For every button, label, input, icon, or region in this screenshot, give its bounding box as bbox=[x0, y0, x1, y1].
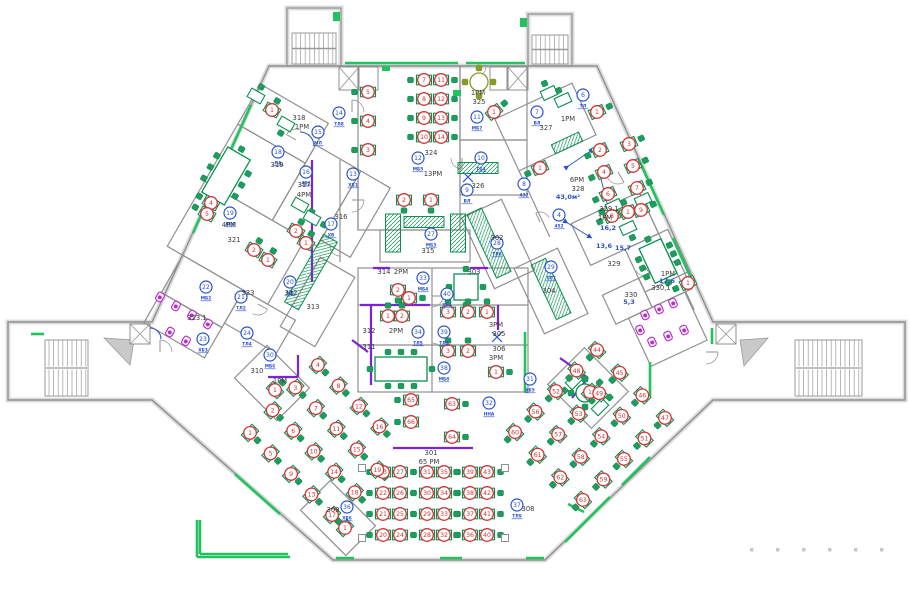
badge-number: 2 bbox=[598, 147, 602, 154]
badge-number: 9 bbox=[422, 115, 426, 122]
badge-number: 29 bbox=[423, 511, 431, 518]
chair bbox=[385, 383, 391, 389]
equipment-marker: 23ХБ3 bbox=[197, 333, 209, 354]
badge-number: 3 bbox=[627, 141, 631, 148]
badge-number: 1 bbox=[588, 389, 592, 396]
staircase bbox=[292, 33, 336, 64]
room-label: 1PM bbox=[561, 115, 575, 123]
marker-number: 14 bbox=[335, 110, 343, 117]
room-label: 306 bbox=[493, 345, 506, 353]
desk-number-badge: 11 bbox=[330, 422, 343, 435]
badge-number: 47 bbox=[661, 415, 669, 422]
marker-number: 29 bbox=[547, 264, 555, 271]
shaft-box bbox=[490, 67, 507, 90]
marker-number: 6 bbox=[581, 92, 585, 99]
badge-number: 20 bbox=[379, 532, 387, 539]
desk-number-badge: 5 bbox=[201, 208, 214, 221]
cabinet bbox=[386, 214, 401, 252]
chair bbox=[568, 390, 574, 396]
equipment-marker: 29ТЛ7 bbox=[545, 261, 557, 282]
badge-number: 61 bbox=[534, 452, 542, 459]
desk-number-badge: 51 bbox=[638, 432, 651, 445]
badge-number: 4 bbox=[366, 118, 370, 125]
area-label: 15,7 bbox=[615, 244, 631, 252]
room-label: 325 bbox=[473, 98, 486, 106]
room-label: 3PM bbox=[489, 321, 503, 329]
marker-number: 40 bbox=[443, 291, 451, 298]
marker-number: 33 bbox=[419, 275, 427, 282]
marker-number: 12 bbox=[414, 155, 422, 162]
staircase bbox=[532, 35, 568, 64]
elevator bbox=[130, 324, 150, 344]
badge-number: 3 bbox=[446, 309, 450, 316]
badge-number: 18 bbox=[351, 490, 359, 497]
marker-number: 10 bbox=[477, 155, 485, 162]
badge-number: 9 bbox=[289, 471, 293, 478]
badge-number: 1 bbox=[273, 387, 277, 394]
marker-number: 15 bbox=[314, 129, 322, 136]
badge-number: 65 bbox=[407, 397, 415, 404]
badge-number: 7 bbox=[635, 185, 639, 192]
chair bbox=[401, 208, 407, 214]
room-label: 321 bbox=[228, 236, 241, 244]
badge-number: 42 bbox=[483, 490, 491, 497]
room-label: 4PM bbox=[297, 191, 311, 199]
desk-number-badge: 46 bbox=[636, 389, 649, 402]
badge-number: 14 bbox=[330, 469, 338, 476]
room-label: 315 bbox=[422, 247, 435, 255]
desk-number-badge: 1 bbox=[682, 277, 695, 290]
marker-number: 34 bbox=[414, 329, 422, 336]
desk-number-badge: 56 bbox=[529, 405, 542, 418]
chair bbox=[367, 532, 373, 538]
room-label: 328 bbox=[572, 185, 585, 193]
marker-number: 13 bbox=[349, 171, 357, 178]
badge-number: 48 bbox=[573, 368, 581, 375]
equipment-marker: 34ТЛ5 bbox=[412, 326, 424, 347]
badge-number: 1 bbox=[494, 369, 498, 376]
desk-number-badge: 3 bbox=[623, 138, 636, 151]
badge-number: 39 bbox=[466, 469, 474, 476]
desk-number-badge: 44 bbox=[591, 344, 604, 357]
chair bbox=[465, 338, 471, 344]
desk-number-badge: 42 bbox=[481, 487, 494, 500]
desk-number-badge: 38 bbox=[464, 487, 477, 500]
desk-number-badge: 26 bbox=[394, 487, 407, 500]
room-label: 326 bbox=[472, 182, 485, 190]
badge-number: 4 bbox=[209, 200, 213, 207]
badge-number: 63 bbox=[448, 401, 456, 408]
room-label: 323 bbox=[242, 289, 255, 297]
equipment-marker: 22МБ2 bbox=[200, 281, 212, 302]
chair bbox=[352, 147, 358, 153]
room-label: 313 bbox=[307, 303, 320, 311]
desk-number-badge: 24 bbox=[394, 529, 407, 542]
desk-number-badge: 6 bbox=[602, 188, 615, 201]
chair bbox=[411, 383, 417, 389]
desk-number-badge: 1 bbox=[339, 522, 352, 535]
badge-number: 9 bbox=[639, 207, 643, 214]
chair bbox=[428, 208, 434, 214]
desk-number-badge: 66 bbox=[405, 416, 418, 429]
desk-number-badge: 2 bbox=[290, 225, 303, 238]
badge-number: 5 bbox=[366, 89, 370, 96]
badge-number: 55 bbox=[620, 456, 628, 463]
elevator bbox=[339, 67, 359, 90]
chair bbox=[498, 490, 504, 496]
marker-number: 27 bbox=[427, 231, 435, 238]
facade-column bbox=[776, 548, 780, 552]
table-top bbox=[454, 274, 478, 300]
facade-column bbox=[828, 548, 832, 552]
marker-number: 19 bbox=[226, 210, 234, 217]
equipment-marker: 27МБ3 bbox=[425, 228, 437, 249]
badge-number: 2 bbox=[271, 408, 275, 415]
badge-number: 21 bbox=[379, 511, 387, 518]
desk-number-badge: 52 bbox=[550, 385, 563, 398]
badge-number: 7 bbox=[422, 77, 426, 84]
chair bbox=[411, 469, 417, 475]
desk-number-badge: 63 bbox=[446, 398, 459, 411]
window-block bbox=[520, 18, 527, 27]
desk-number-badge: 2 bbox=[396, 310, 409, 323]
badge-number: 11 bbox=[437, 77, 445, 84]
cabinet-body bbox=[386, 214, 401, 252]
badge-number: 53 bbox=[575, 411, 583, 418]
desk-number-badge: 31 bbox=[421, 466, 434, 479]
chair bbox=[408, 77, 414, 83]
marker-number: 7 bbox=[535, 109, 539, 116]
room-label: 305 bbox=[493, 330, 506, 338]
desk-number-badge: 28 bbox=[421, 529, 434, 542]
badge-number: 63 bbox=[579, 497, 587, 504]
room-label: 316 bbox=[335, 213, 348, 221]
staircase bbox=[45, 340, 88, 396]
desk-number-badge: 8 bbox=[332, 379, 345, 392]
desk-number-badge: 2 bbox=[392, 284, 405, 297]
desk-number-badge: 1 bbox=[490, 366, 503, 379]
badge-number: 49 bbox=[595, 390, 603, 397]
room-label: 329.1 bbox=[599, 205, 618, 213]
chair bbox=[452, 115, 458, 121]
badge-number: 57 bbox=[554, 431, 562, 438]
chair bbox=[420, 295, 426, 301]
desk-number-badge: 60 bbox=[509, 426, 522, 439]
badge-number: 1 bbox=[386, 313, 390, 320]
badge-number: 5 bbox=[205, 211, 209, 218]
badge-number: 62 bbox=[556, 475, 564, 482]
badge-number: 24 bbox=[396, 532, 404, 539]
chair bbox=[191, 203, 199, 211]
desk-number-badge: 45 bbox=[613, 366, 626, 379]
badge-number: 2 bbox=[294, 228, 298, 235]
badge-number: 4 bbox=[316, 362, 320, 369]
badge-number: 30 bbox=[423, 490, 431, 497]
window-block bbox=[453, 90, 461, 96]
badge-number: 14 bbox=[437, 134, 445, 141]
room-label: 6PM bbox=[570, 176, 584, 184]
desk-number-badge: 55 bbox=[618, 453, 631, 466]
window-block bbox=[382, 66, 390, 71]
facade-column bbox=[750, 548, 754, 552]
room-label: 314 bbox=[378, 268, 391, 276]
room-label: 317 bbox=[298, 181, 311, 189]
room-label: 1PM bbox=[295, 123, 309, 131]
equipment-marker: 40ХБ4 bbox=[441, 288, 453, 309]
column bbox=[502, 465, 509, 472]
desk-number-badge: 9 bbox=[285, 468, 298, 481]
room-label: 322 bbox=[285, 289, 298, 297]
desk-number-badge: 61 bbox=[531, 448, 544, 461]
desk-number-badge: 1 bbox=[488, 106, 501, 119]
desk-number-badge: 53 bbox=[572, 407, 585, 420]
equipment-marker: 33МБ4 bbox=[417, 272, 429, 293]
badge-number: 1 bbox=[304, 240, 308, 247]
area-label: 17,6 bbox=[659, 277, 676, 285]
badge-number: 1 bbox=[429, 197, 433, 204]
room-label: 319 bbox=[271, 161, 284, 169]
chair bbox=[463, 401, 469, 407]
room-label: 308 bbox=[522, 505, 535, 513]
column bbox=[359, 535, 366, 542]
desk-number-badge: 18 bbox=[348, 486, 361, 499]
chair bbox=[395, 419, 401, 425]
room-label: 330,1 bbox=[651, 284, 670, 292]
desk-number-badge: 1 bbox=[244, 427, 257, 440]
chair bbox=[213, 152, 221, 160]
marker-number: 4 bbox=[557, 212, 561, 219]
desk-number-badge: 1 bbox=[403, 292, 416, 305]
desk-number-badge: 1 bbox=[266, 104, 279, 117]
desk-number-badge: 5 bbox=[627, 160, 640, 173]
badge-number: 1 bbox=[343, 525, 347, 532]
chair bbox=[206, 163, 214, 171]
badge-number: 1 bbox=[686, 280, 690, 287]
desk-number-badge: 3 bbox=[442, 345, 455, 358]
desk-number-badge: 19 bbox=[371, 463, 384, 476]
badge-number: 3 bbox=[293, 385, 297, 392]
badge-number: 6 bbox=[291, 428, 295, 435]
room-label: 1PM bbox=[471, 89, 485, 97]
area-label: 5,3 bbox=[623, 298, 635, 306]
desk-number-badge: 1 bbox=[262, 254, 275, 267]
desk-number-badge: 1 bbox=[269, 384, 282, 397]
room-label: 65 PM bbox=[419, 458, 440, 466]
chair bbox=[454, 490, 460, 496]
desk-number-badge: 8 bbox=[418, 93, 431, 106]
marker-number: 36 bbox=[343, 504, 351, 511]
room-label: 3PM bbox=[489, 354, 503, 362]
badge-number: 2 bbox=[402, 197, 406, 204]
badge-number: 1 bbox=[595, 109, 599, 116]
equipment-marker: 12МБ5 bbox=[412, 152, 424, 173]
chair bbox=[452, 96, 458, 102]
badge-number: 5 bbox=[269, 451, 273, 458]
chair bbox=[352, 89, 358, 95]
chair bbox=[463, 434, 469, 440]
room-label: 311 bbox=[363, 343, 376, 351]
badge-number: 1 bbox=[270, 107, 274, 114]
desk-number-badge: 20 bbox=[377, 529, 390, 542]
facade-column bbox=[854, 548, 858, 552]
desk-number-badge: 14 bbox=[435, 131, 448, 144]
room-label: 318 bbox=[293, 114, 306, 122]
equipment-marker: 11МБ7 bbox=[471, 111, 483, 132]
equipment-marker: 14ТЛ8 bbox=[333, 107, 345, 128]
desk-number-badge: 13 bbox=[305, 488, 318, 501]
desk-number-badge: 25 bbox=[394, 508, 407, 521]
badge-number: 6 bbox=[606, 191, 610, 198]
badge-number: 1 bbox=[485, 309, 489, 316]
desk-number-badge: 49 bbox=[593, 387, 606, 400]
desk-number-badge: 1 bbox=[534, 162, 547, 175]
marker-number: 18 bbox=[274, 149, 282, 156]
chair bbox=[408, 115, 414, 121]
room-label: 302 bbox=[491, 234, 504, 242]
chair bbox=[398, 383, 404, 389]
chair bbox=[411, 532, 417, 538]
desk-number-badge: 15 bbox=[351, 443, 364, 456]
chair bbox=[411, 349, 417, 355]
desk-number-badge: 4 bbox=[598, 166, 611, 179]
room-label: 323.1 bbox=[187, 314, 206, 322]
desk-number-badge: 1 bbox=[591, 106, 604, 119]
desk-number-badge: 2 bbox=[398, 194, 411, 207]
badge-number: 64 bbox=[448, 434, 456, 441]
desk-number-badge: 1 bbox=[481, 306, 494, 319]
desk-number-badge: 57 bbox=[552, 428, 565, 441]
badge-number: 27 bbox=[396, 469, 404, 476]
chair bbox=[637, 134, 645, 142]
badge-number: 2 bbox=[252, 247, 256, 254]
chair bbox=[395, 397, 401, 403]
desk-number-badge: 54 bbox=[595, 430, 608, 443]
facade-column bbox=[880, 548, 884, 552]
floor-plan-page: 5437891011121314211112345678911145212121… bbox=[0, 0, 910, 600]
marker-number: 24 bbox=[243, 330, 251, 337]
chair bbox=[465, 299, 471, 305]
elevator bbox=[716, 324, 736, 344]
marker-number: 31 bbox=[526, 376, 534, 383]
desk-number-badge: 4 bbox=[362, 115, 375, 128]
chair bbox=[476, 65, 482, 71]
area-label: 13,6 bbox=[596, 242, 613, 250]
chair bbox=[454, 469, 460, 475]
badge-number: 58 bbox=[577, 454, 585, 461]
desk-number-badge: 58 bbox=[575, 451, 588, 464]
chair bbox=[452, 77, 458, 83]
area-label: 43,0м² bbox=[556, 193, 580, 201]
desk-number-badge: 22 bbox=[377, 487, 390, 500]
chair bbox=[452, 134, 458, 140]
marker-number: 22 bbox=[202, 284, 210, 291]
desk-number-badge: 50 bbox=[616, 410, 629, 423]
chair bbox=[367, 511, 373, 517]
badge-number: 52 bbox=[552, 388, 560, 395]
room-label: 310 bbox=[251, 367, 264, 375]
badge-number: 1 bbox=[492, 109, 496, 116]
room-label: 324 bbox=[425, 149, 438, 157]
desk-number-badge: 27 bbox=[394, 466, 407, 479]
desk-number-badge: 1 bbox=[382, 310, 395, 323]
desk-number-badge: 5 bbox=[264, 447, 277, 460]
area-label: 16,2 bbox=[600, 224, 616, 232]
badge-number: 35 bbox=[440, 469, 448, 476]
badge-number: 51 bbox=[641, 436, 649, 443]
marker-number: 20 bbox=[286, 279, 294, 286]
chair bbox=[398, 349, 404, 355]
room-label: 327 bbox=[540, 124, 553, 132]
chair bbox=[498, 511, 504, 517]
desk-number-badge: 12 bbox=[435, 93, 448, 106]
elevator bbox=[508, 67, 528, 90]
desk-number-badge: 7 bbox=[418, 74, 431, 87]
badge-number: 31 bbox=[423, 469, 431, 476]
chair bbox=[411, 490, 417, 496]
chair bbox=[454, 511, 460, 517]
badge-number: 3 bbox=[366, 147, 370, 154]
desk-number-badge: 1 bbox=[300, 237, 313, 250]
chair bbox=[484, 299, 490, 305]
equipment-marker: 24ТЛ4 bbox=[241, 327, 253, 348]
chair bbox=[480, 284, 486, 290]
marker-number: 39 bbox=[440, 329, 448, 336]
room-label: 303 bbox=[468, 268, 481, 276]
facade-column bbox=[802, 548, 806, 552]
badge-number: 15 bbox=[353, 446, 361, 453]
desk-number-badge: 63 bbox=[577, 494, 590, 507]
badge-number: 3 bbox=[446, 348, 450, 355]
chair bbox=[454, 532, 460, 538]
badge-number: 8 bbox=[422, 96, 426, 103]
room-label: 4PM bbox=[222, 221, 236, 229]
chair bbox=[490, 79, 496, 85]
table-top bbox=[375, 357, 427, 381]
badge-number: 26 bbox=[396, 490, 404, 497]
badge-number: 1 bbox=[538, 165, 542, 172]
chair bbox=[399, 303, 405, 309]
badge-number: 32 bbox=[440, 532, 448, 539]
equipment-marker: 4452 bbox=[553, 209, 565, 230]
badge-number: 10 bbox=[420, 134, 428, 141]
desk-number-badge: 62 bbox=[554, 471, 567, 484]
badge-number: 2 bbox=[466, 309, 470, 316]
badge-number: 38 bbox=[466, 490, 474, 497]
room-label: 312 bbox=[363, 327, 376, 335]
chair bbox=[411, 511, 417, 517]
room-label: 2PM bbox=[394, 268, 408, 276]
desk-number-badge: 13 bbox=[435, 112, 448, 125]
marker-number: 11 bbox=[473, 114, 481, 121]
badge-number: 13 bbox=[308, 492, 316, 499]
badge-number: 60 bbox=[511, 429, 519, 436]
marker-number: 38 bbox=[440, 365, 448, 372]
room-label: 1PM bbox=[273, 377, 287, 385]
chair bbox=[385, 303, 391, 309]
desk-number-badge: 4 bbox=[312, 359, 325, 372]
desk-number-badge: 2 bbox=[248, 244, 261, 257]
room-label: 301 bbox=[425, 449, 438, 457]
badge-number: 45 bbox=[616, 370, 624, 377]
badge-number: 5 bbox=[631, 163, 635, 170]
badge-number: 1 bbox=[266, 257, 270, 264]
cabinet-body bbox=[451, 214, 466, 252]
marker-number: 32 bbox=[485, 400, 493, 407]
badge-number: 36 bbox=[466, 532, 474, 539]
desk-number-badge: 11 bbox=[435, 74, 448, 87]
desk-number-badge: 59 bbox=[597, 473, 610, 486]
badge-number: 33 bbox=[440, 511, 448, 518]
